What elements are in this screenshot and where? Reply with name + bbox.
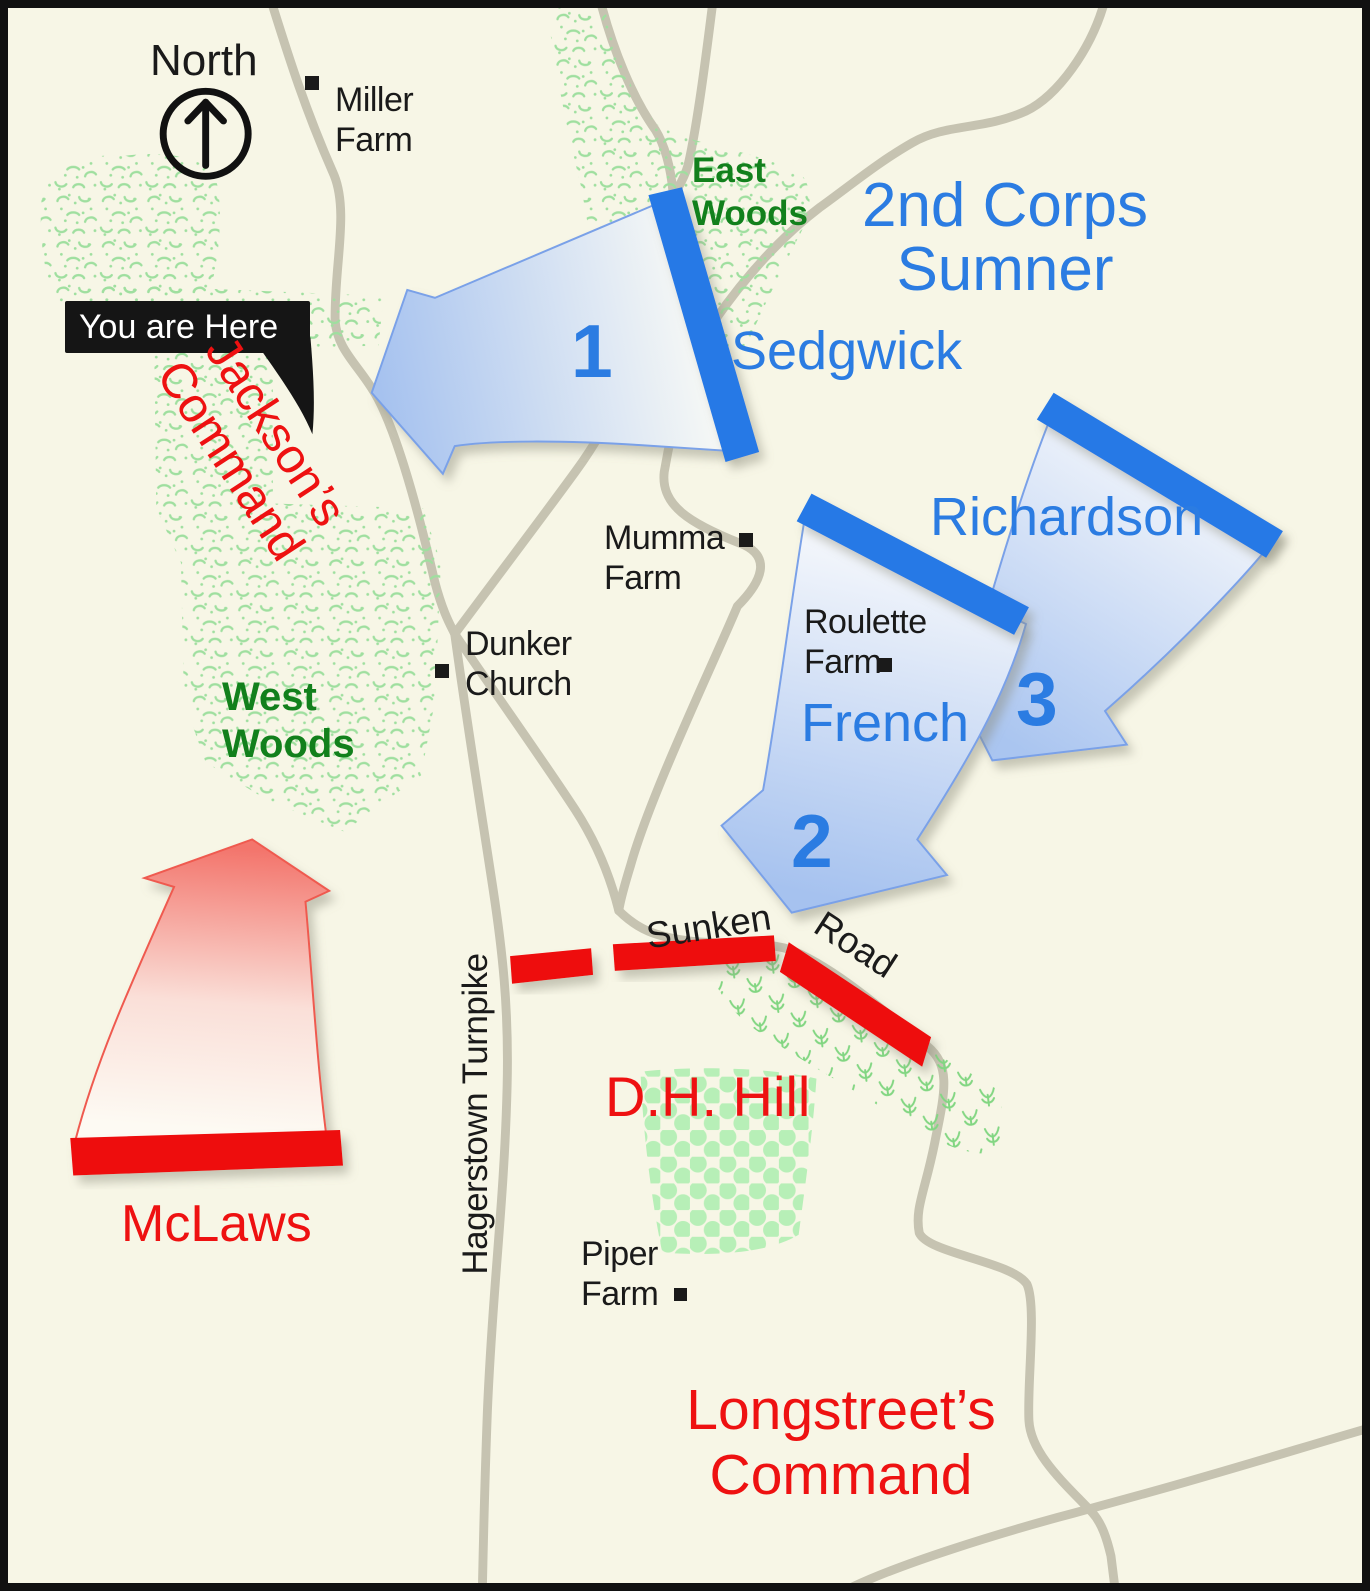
- roulette-farm-marker: [878, 658, 892, 672]
- hagerstown-turnpike-label: Hagerstown Turnpike: [456, 934, 496, 1294]
- roulette-farm-label: Roulette Farm: [804, 602, 927, 682]
- french-label: French: [801, 692, 969, 754]
- mumma-farm-marker: [739, 533, 753, 547]
- compass-icon: [163, 91, 248, 176]
- richardson-number: 3: [1016, 656, 1058, 742]
- french-number: 2: [791, 798, 833, 884]
- mclaws-arrow: [75, 839, 329, 1140]
- mclaws-line: [70, 1130, 343, 1175]
- miller-farm-marker: [305, 76, 319, 90]
- dunker-church-label: Dunker Church: [465, 624, 572, 704]
- mclaws-label: McLaws: [121, 1194, 312, 1254]
- miller-farm-label: Miller Farm: [335, 80, 413, 160]
- battle-map: North Miller Farm East Woods 2nd Corps S…: [0, 0, 1370, 1591]
- richardson-label: Richardson: [930, 486, 1203, 548]
- sedgwick-label: Sedgwick: [731, 320, 962, 382]
- east-woods-label: East Woods: [692, 149, 808, 235]
- dh-hill-label: D.H. Hill: [605, 1064, 810, 1129]
- sunken-road-line-west: [510, 948, 593, 984]
- piper-farm-label: Piper Farm: [581, 1234, 658, 1314]
- corps-label: 2nd Corps Sumner: [825, 174, 1185, 302]
- piper-farm-marker: [674, 1288, 687, 1301]
- mumma-farm-label: Mumma Farm: [604, 518, 724, 598]
- longstreet-command-label: Longstreet’s Command: [636, 1378, 1046, 1508]
- dunker-church-marker: [435, 664, 449, 678]
- west-woods-label: West Woods: [222, 674, 355, 768]
- sedgwick-number: 1: [571, 308, 613, 394]
- compass-north-label: North: [150, 36, 258, 86]
